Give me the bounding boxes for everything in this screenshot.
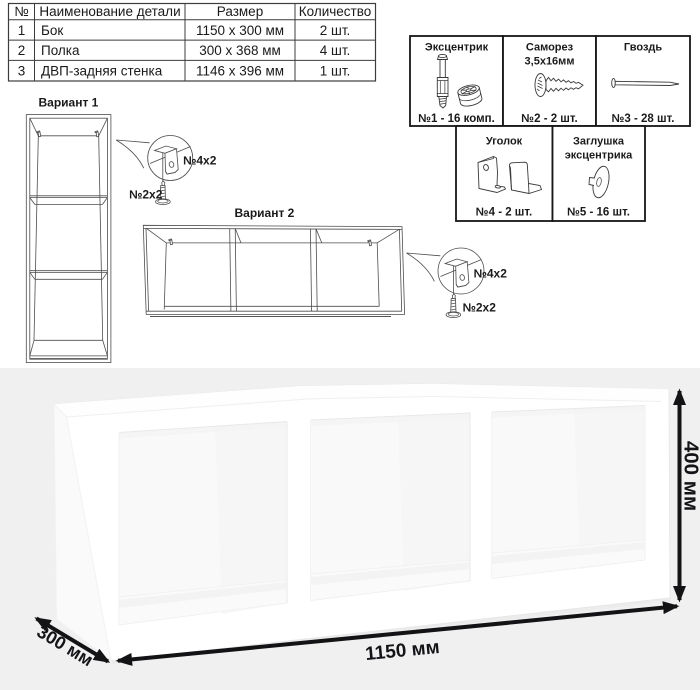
svg-text:Заглушка: Заглушка (573, 136, 625, 148)
svg-text:Саморез: Саморез (526, 42, 574, 54)
svg-text:эксцентрика: эксцентрика (565, 150, 633, 162)
svg-text:№4х2: №4х2 (183, 154, 217, 168)
svg-text:1 шт.: 1 шт. (320, 63, 351, 78)
svg-text:400 мм: 400 мм (680, 441, 700, 511)
svg-text:4 шт.: 4 шт. (320, 43, 351, 58)
svg-text:3,5х16мм: 3,5х16мм (525, 56, 575, 68)
svg-text:№4х2: №4х2 (474, 267, 508, 281)
svg-text:2: 2 (18, 43, 26, 58)
svg-text:Эксцентрик: Эксцентрик (425, 42, 489, 54)
svg-text:3: 3 (18, 63, 26, 78)
svg-text:Наименование детали: Наименование детали (39, 4, 180, 19)
svg-text:№5 - 16 шт.: №5 - 16 шт. (567, 207, 630, 219)
svg-text:№4 - 2 шт.: №4 - 2 шт. (476, 207, 532, 219)
svg-text:Уголок: Уголок (486, 136, 523, 148)
svg-text:2 шт.: 2 шт. (320, 23, 351, 38)
svg-text:№2х2: №2х2 (129, 188, 163, 202)
svg-text:1146 x 396 мм: 1146 x 396 мм (196, 63, 284, 78)
svg-text:Вариант 2: Вариант 2 (235, 206, 295, 220)
svg-text:ДВП-задняя стенка: ДВП-задняя стенка (41, 63, 163, 78)
svg-text:№2 - 2 шт.: №2 - 2 шт. (521, 113, 577, 125)
svg-text:Бок: Бок (41, 23, 63, 38)
svg-text:№3 - 28 шт.: №3 - 28 шт. (612, 113, 675, 125)
svg-text:300 x 368 мм: 300 x 368 мм (199, 43, 281, 58)
svg-text:Вариант 1: Вариант 1 (39, 95, 99, 109)
svg-text:Гвоздь: Гвоздь (624, 42, 663, 54)
svg-text:1: 1 (18, 23, 26, 38)
svg-text:№: № (14, 4, 28, 19)
svg-text:№2х2: №2х2 (463, 301, 497, 315)
svg-text:№1 - 16 комп.: №1 - 16 комп. (418, 113, 495, 125)
svg-text:Полка: Полка (41, 43, 80, 58)
svg-text:Размер: Размер (217, 4, 263, 19)
svg-text:Количество: Количество (299, 4, 372, 19)
svg-text:1150 x 300 мм: 1150 x 300 мм (196, 23, 284, 38)
